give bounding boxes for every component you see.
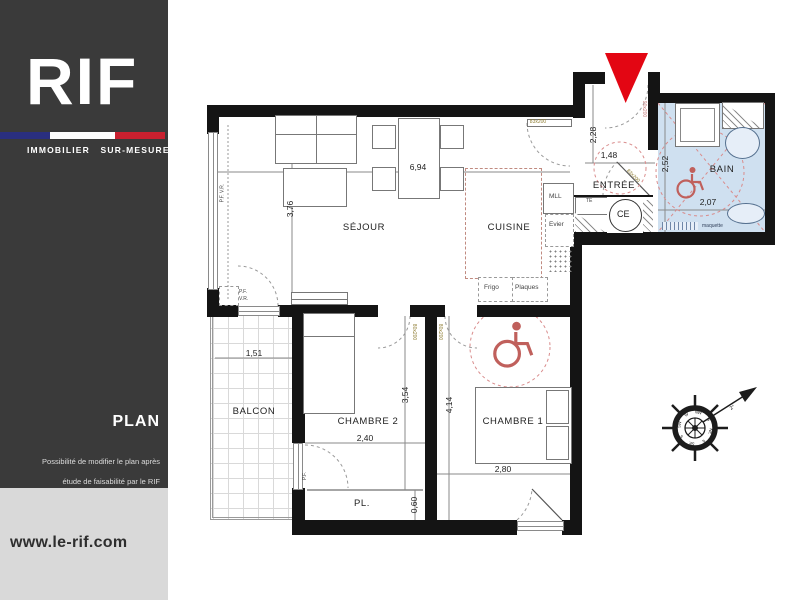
bath-mat-strip (662, 222, 698, 230)
wall (207, 105, 585, 117)
shower (675, 103, 720, 147)
website-link[interactable]: www.le-rif.com (10, 534, 127, 552)
french-flag-bar (0, 132, 165, 139)
door-size-chambre2: 80x200 (411, 317, 417, 347)
window-label-sejour-bottom: P.F. V.R. (239, 289, 248, 302)
dim-bain-width: 2,07 (688, 197, 728, 207)
label-ce: CE (617, 209, 630, 219)
wall (207, 305, 238, 317)
chair (440, 167, 464, 191)
drainer-dots (548, 249, 572, 272)
flag-blue-segment (0, 132, 50, 139)
compass-rose: N NE E SE S SW W NW 2° (662, 387, 757, 461)
hatch-box (722, 102, 764, 129)
dim-entree-width: 1,48 (589, 150, 629, 160)
sofa (275, 115, 357, 164)
floorplan-page: RIF IMMOBILIER SUR-MESURE PLAN Possibili… (0, 0, 800, 600)
room-label-chambre1: CHAMBRE 1 (463, 416, 563, 427)
bathroom-sink (725, 127, 760, 159)
french-door-balcony (238, 306, 280, 316)
label-washing-machine: MLL (549, 193, 562, 200)
svg-text:2°: 2° (729, 404, 736, 412)
dim-chambre2-width: 2,40 (345, 433, 385, 443)
door-size-chambre1: 80x200 (437, 317, 443, 347)
dim-sejour-height: 3,76 (285, 189, 295, 229)
pillow (546, 426, 569, 460)
room-label-balcon: BALCON (204, 406, 304, 417)
dim-placard-depth: 0,60 (409, 485, 419, 525)
room-label-entree: ENTRÉE (564, 180, 664, 191)
window-label-chambre2: P.F. (302, 472, 308, 480)
note-line1: Possibilité de modifier le plan après (42, 457, 160, 466)
toilet (727, 203, 765, 224)
chair (372, 125, 396, 149)
wheelchair-icon (495, 322, 532, 366)
chair (372, 167, 396, 191)
room-label-bain: BAIN (672, 164, 772, 175)
floorplan-drawing: N NE E SE S SW W NW 2° (168, 0, 800, 600)
dining-table (398, 118, 440, 199)
wall (573, 232, 775, 245)
dim-sejour-width: 6,94 (398, 162, 438, 172)
door-size-entrance: 90x200 (641, 94, 647, 124)
bed-single (303, 313, 355, 414)
window-sejour (208, 132, 218, 290)
chair (440, 125, 464, 149)
french-door-chambre1 (517, 521, 564, 531)
note-line2: étude de faisabilité par le RIF (62, 477, 160, 486)
room-label-chambre2: CHAMBRE 2 (318, 416, 418, 427)
window-chambre2 (293, 443, 303, 490)
dim-entree-height: 2,28 (588, 115, 598, 155)
dim-chambre2-height: 3,54 (400, 375, 410, 415)
room-label-cuisine: CUISINE (459, 222, 559, 233)
room-label-sejour: SÉJOUR (314, 222, 414, 233)
north-arrow: 2° (703, 387, 757, 422)
rif-logo: RIF (26, 48, 138, 114)
wall (648, 103, 658, 150)
flag-red-segment (115, 132, 165, 139)
label-evier: Evier (549, 221, 564, 228)
wall (292, 520, 517, 535)
wall-bedroom-divider (425, 316, 437, 522)
window-label-sejour-side: P.F. V.R. (219, 184, 225, 203)
label-frigo: Frigo (484, 284, 499, 291)
label-plaques: Plaques (515, 284, 539, 291)
room-label-placard: PL. (312, 498, 412, 509)
dim-chambre1-width: 2,80 (483, 464, 523, 474)
dim-balcon-width: 1,51 (234, 348, 274, 358)
door-size-sejour: 83x200 (523, 119, 553, 125)
roller-shutter-box (219, 286, 239, 306)
flag-white-segment (50, 132, 115, 139)
sidebar-footer: www.le-rif.com (0, 488, 168, 600)
dim-bain-height: 2,52 (660, 144, 670, 184)
label-maquette: maquette (702, 223, 723, 229)
wall (573, 72, 605, 84)
logo-tagline: IMMOBILIER SUR-MESURE (27, 145, 170, 155)
label-te: TE (586, 198, 592, 204)
wall (477, 305, 582, 317)
hatch-strip (643, 200, 653, 232)
wall (207, 105, 219, 134)
feasibility-note: Possibilité de modifier le plan après ét… (42, 457, 160, 487)
radiator (291, 292, 348, 305)
sidebar: RIF IMMOBILIER SUR-MESURE PLAN Possibili… (0, 0, 168, 600)
section-title: PLAN (112, 413, 160, 431)
dim-chambre1-height: 4,14 (444, 385, 454, 425)
